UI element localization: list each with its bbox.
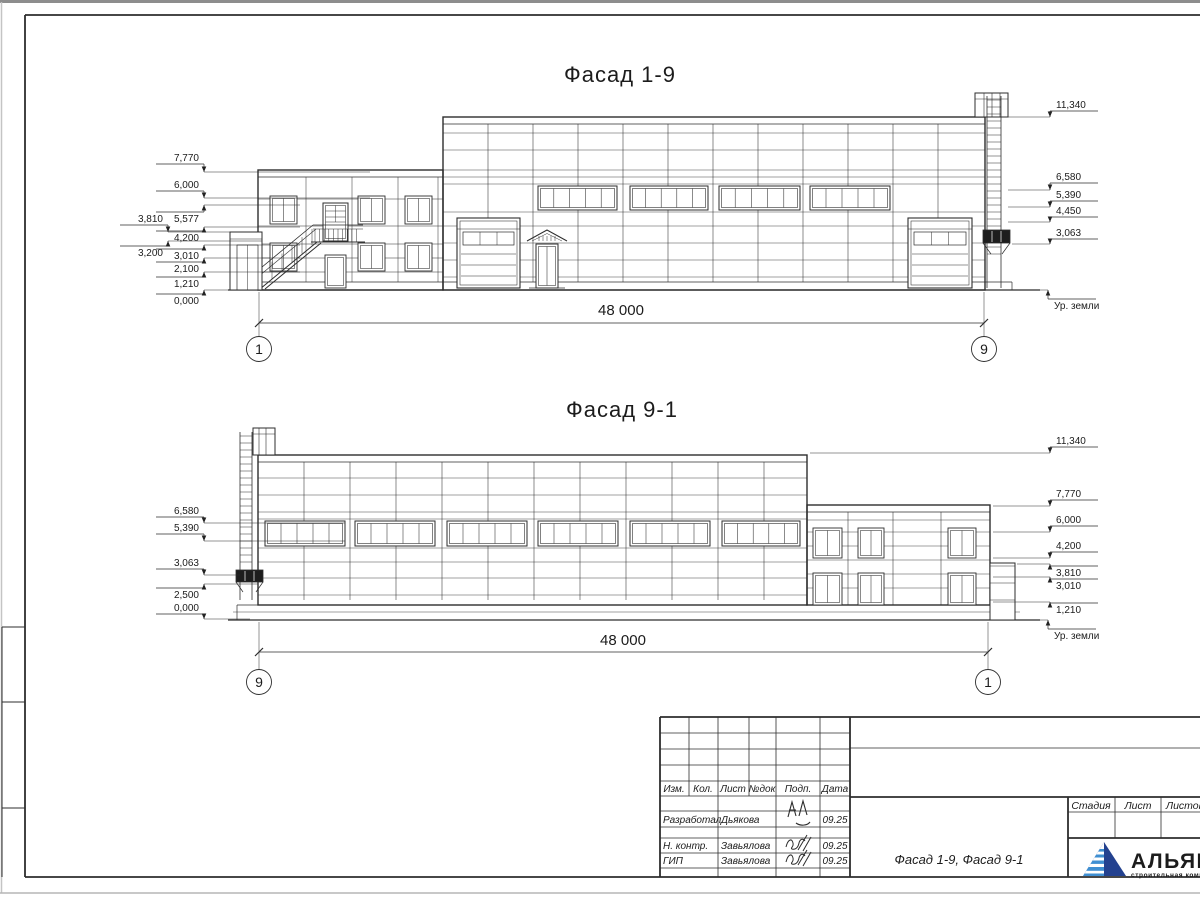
svg-text:3,010: 3,010 <box>1056 581 1081 592</box>
svg-text:3,810: 3,810 <box>1056 568 1081 579</box>
svg-text:1,210: 1,210 <box>1056 605 1081 616</box>
facade-drawing-canvas: 7,7706,0005,5773,8104,2003,2003,0102,100… <box>0 0 1200 900</box>
rev-col-podp: Подп. <box>785 784 812 795</box>
logo-name: АЛЬЯНС <box>1131 850 1200 873</box>
elevation-mark: 3,063 <box>1012 228 1098 244</box>
svg-text:0,000: 0,000 <box>174 603 199 614</box>
doc-title: Фасад 1-9, Фасад 9-1 <box>895 852 1024 867</box>
elevation-mark: 11,340 <box>810 436 1098 453</box>
facade2-axis-left-label: 9 <box>255 674 263 690</box>
facade-1-9-drawing <box>228 93 1040 336</box>
elevation-mark: 7,770 <box>156 153 370 172</box>
facade1-dimension-label: 48 000 <box>598 302 644 319</box>
facade1-axis-right-label: 9 <box>980 341 988 357</box>
svg-text:5,390: 5,390 <box>174 523 199 534</box>
elevation-mark: 4,200 <box>993 541 1098 558</box>
elevation-mark: 5,390 <box>1008 190 1098 207</box>
row3-name: Завьялова <box>721 856 771 867</box>
company-logo <box>1080 842 1126 878</box>
svg-text:0,000: 0,000 <box>174 296 199 307</box>
svg-text:11,340: 11,340 <box>1056 100 1086 111</box>
svg-text:3,200: 3,200 <box>138 248 163 259</box>
svg-text:3,010: 3,010 <box>174 251 199 262</box>
svg-text:Ур. земли: Ур. земли <box>1054 301 1099 312</box>
elevation-mark: 4,450 <box>1008 206 1098 222</box>
rev-col-ndok: №док <box>749 784 777 795</box>
svg-text:3,810: 3,810 <box>138 214 163 225</box>
elevation-marks: 7,7706,0005,5773,8104,2003,2003,0102,100… <box>120 100 1099 642</box>
stage-col-list: Лист <box>1123 800 1151 812</box>
svg-text:3,063: 3,063 <box>1056 228 1081 239</box>
elevation-mark: Ур. земли <box>1013 290 1099 312</box>
svg-text:6,580: 6,580 <box>1056 172 1081 183</box>
elevation-mark: 6,000 <box>156 180 370 198</box>
row2-name: Завьялова <box>721 841 771 852</box>
facade1-title: Фасад 1-9 <box>564 62 676 87</box>
stage-col-listov: Листов <box>1165 800 1200 812</box>
row3-date: 09.25 <box>822 856 847 867</box>
elevation-mark: 7,770 <box>993 489 1098 506</box>
row2-date: 09.25 <box>822 841 847 852</box>
row1-role: Разработал <box>663 814 722 826</box>
logo-subtitle: строительная компания <box>1131 872 1200 879</box>
svg-text:2,500: 2,500 <box>174 590 199 601</box>
drawing-sheet: 7,7706,0005,5773,8104,2003,2003,0102,100… <box>0 0 1200 900</box>
svg-text:1,210: 1,210 <box>174 279 199 290</box>
stage-col-stadiya: Стадия <box>1071 800 1111 812</box>
svg-text:6,000: 6,000 <box>174 180 199 191</box>
svg-text:5,577: 5,577 <box>174 214 199 225</box>
svg-text:6,000: 6,000 <box>1056 515 1081 526</box>
facade2-dimension-label: 48 000 <box>600 632 646 649</box>
svg-text:Ур. земли: Ур. земли <box>1054 631 1099 642</box>
elevation-mark: 0,000 <box>156 603 250 619</box>
elevation-mark: 0,000 <box>156 290 258 307</box>
rev-col-data: Дата <box>821 784 849 795</box>
svg-text:11,340: 11,340 <box>1056 436 1086 447</box>
elevation-mark: Ур. земли <box>1017 620 1099 642</box>
svg-text:4,200: 4,200 <box>1056 541 1081 552</box>
row3-role: ГИП <box>663 856 684 867</box>
svg-text:7,770: 7,770 <box>174 153 199 164</box>
facade1-axis-left-label: 1 <box>255 341 263 357</box>
elevation-mark: 2,500 <box>156 584 258 601</box>
svg-text:2,100: 2,100 <box>174 264 199 275</box>
svg-text:6,580: 6,580 <box>174 506 199 517</box>
elevation-mark: 11,340 <box>1008 100 1098 117</box>
svg-text:7,770: 7,770 <box>1056 489 1081 500</box>
svg-text:3,063: 3,063 <box>174 558 199 569</box>
sheet-frame <box>0 2 1200 894</box>
row1-date: 09.25 <box>822 815 847 826</box>
elevation-mark: 6,580 <box>1008 172 1098 190</box>
rev-col-izm: Изм. <box>663 784 684 795</box>
row2-role: Н. контр. <box>663 841 708 852</box>
facade2-axis-right-label: 1 <box>984 674 992 690</box>
facade2-title: Фасад 9-1 <box>566 397 678 422</box>
row1-name: Дьякова <box>720 815 760 826</box>
elevation-mark: 3,063 <box>156 558 240 575</box>
elevation-mark: 6,580 <box>156 506 345 523</box>
rev-col-kol: Кол. <box>693 784 713 795</box>
svg-text:4,200: 4,200 <box>174 233 199 244</box>
elevation-mark: 6,000 <box>993 515 1098 532</box>
elevation-mark: 4,200 <box>156 227 300 244</box>
svg-text:5,390: 5,390 <box>1056 190 1081 201</box>
svg-text:4,450: 4,450 <box>1056 206 1081 217</box>
rev-col-list: Лист <box>719 784 746 795</box>
